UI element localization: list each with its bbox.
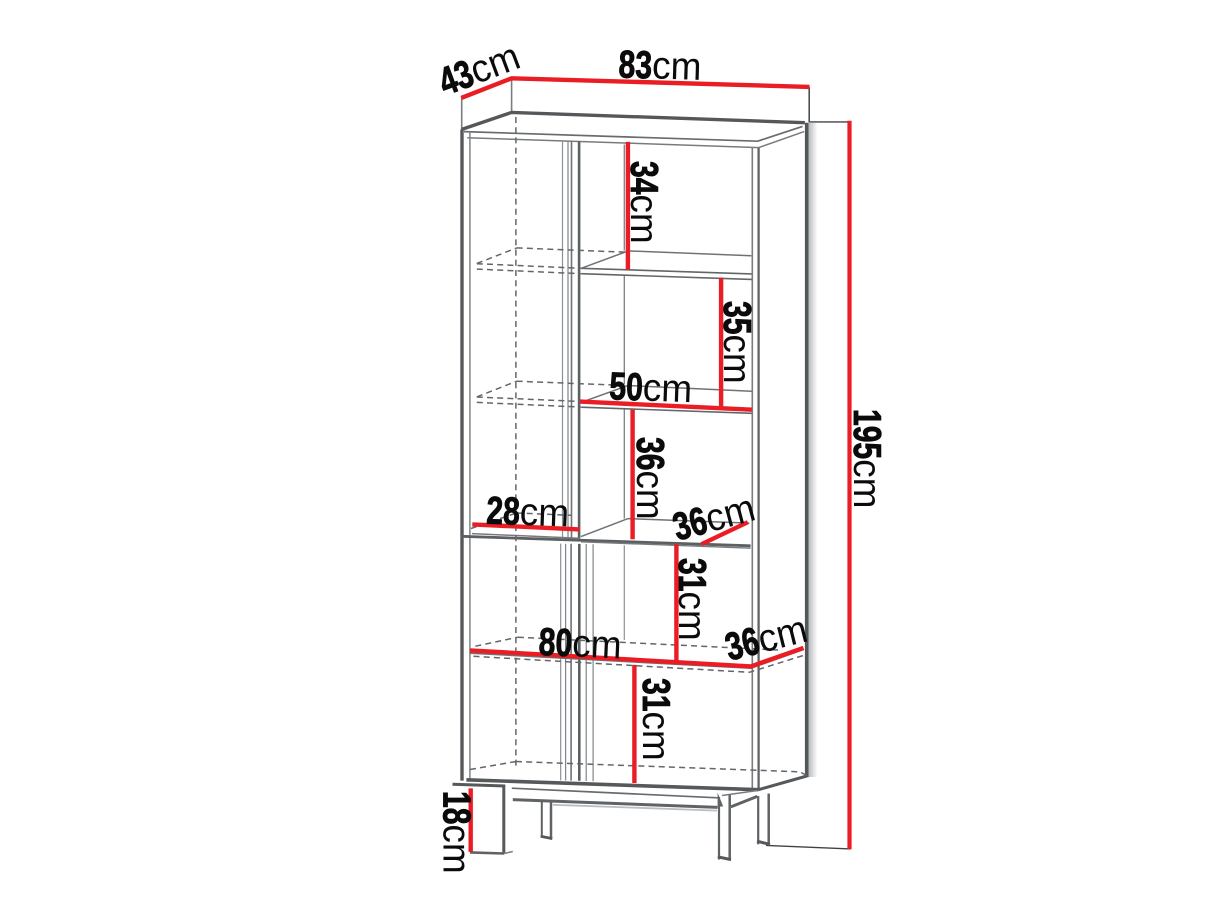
svg-text:cm: cm (434, 824, 477, 873)
svg-text:cm: cm (715, 334, 758, 383)
svg-text:35: 35 (715, 301, 758, 334)
svg-text:cm: cm (634, 711, 677, 760)
svg-text:cm: cm (622, 194, 665, 243)
svg-text:cm: cm (642, 367, 693, 412)
svg-text:80: 80 (538, 621, 573, 665)
svg-text:34: 34 (622, 161, 665, 195)
svg-text:cm: cm (628, 470, 671, 519)
svg-text:cm: cm (519, 491, 570, 536)
svg-text:31: 31 (634, 678, 677, 711)
svg-text:50: 50 (609, 365, 644, 409)
svg-text:28: 28 (486, 490, 521, 534)
svg-text:83: 83 (618, 43, 653, 87)
svg-text:cm: cm (670, 591, 713, 640)
svg-text:36: 36 (628, 437, 671, 470)
svg-text:18: 18 (434, 791, 477, 824)
svg-text:cm: cm (571, 622, 622, 667)
svg-text:cm: cm (845, 459, 888, 508)
svg-text:31: 31 (670, 558, 713, 591)
svg-text:195: 195 (845, 409, 888, 459)
svg-text:cm: cm (651, 44, 702, 88)
